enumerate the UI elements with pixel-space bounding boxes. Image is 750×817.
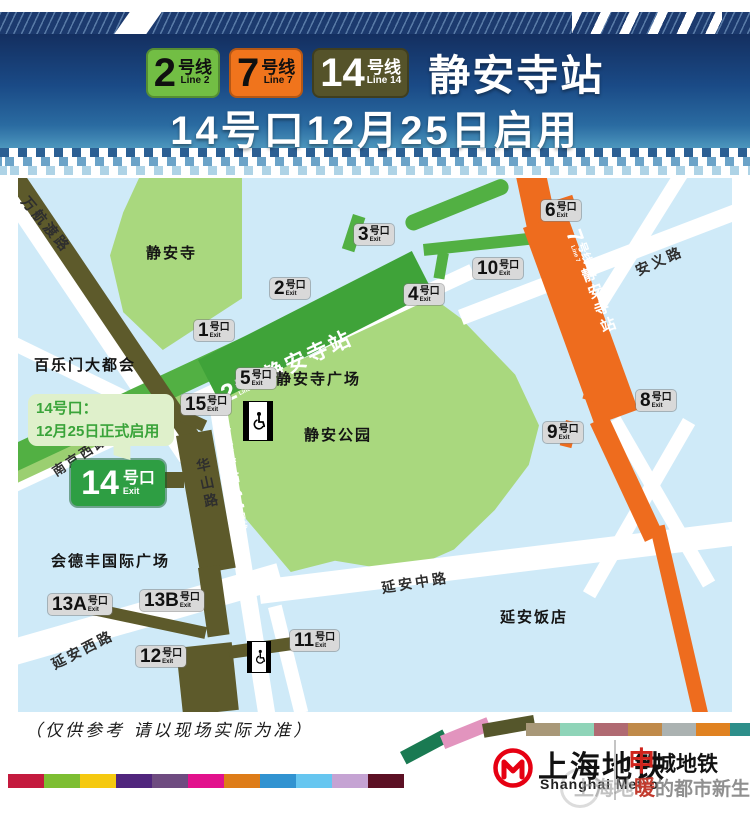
ribbon-segment: [560, 723, 594, 736]
callout-line2: 12月25日正式启用: [36, 421, 166, 444]
wheelchair-glyph: [252, 642, 266, 672]
area-label-gongyuan: 静安公园: [304, 424, 372, 445]
exit-en: Exit: [652, 403, 663, 409]
line-14-badge: 14 号线 Line 14: [312, 48, 409, 98]
exit-en: Exit: [252, 381, 263, 387]
exit-number: 3: [358, 225, 369, 244]
exit-badge-10: 10 号口Exit: [473, 258, 523, 279]
line-14-number: 14: [320, 53, 365, 93]
exit-en: Exit: [180, 603, 191, 609]
exit-word: 号口: [559, 425, 579, 435]
exit-word: 号口: [315, 633, 335, 643]
exit14-opening-callout: 14号口： 12月25日正式启用: [28, 394, 174, 446]
ribbon-segment: [224, 774, 260, 788]
exit-en: Exit: [370, 237, 381, 243]
exit-number: 13B: [144, 591, 179, 610]
exit-en: Exit: [207, 407, 218, 413]
exit-number: 10: [477, 259, 498, 278]
header-title-row: 2 号线 Line 2 7 号线 Line 7 14 号线 Line 14 静安…: [0, 42, 750, 103]
exit-number: 13A: [52, 595, 87, 614]
exit-number: 5: [240, 369, 251, 388]
exit-badge-13a: 13A 号口Exit: [48, 594, 112, 615]
decorative-metro-ribbon-bottom: [8, 774, 405, 788]
exit-word: 号口: [420, 287, 440, 297]
exit-word: 号口: [557, 203, 577, 213]
area-label-bailemen: 百乐门大都会: [34, 354, 136, 375]
exit-en: Exit: [559, 435, 570, 441]
slogan-gray-text: 上海地: [574, 778, 634, 800]
page-title-station: 静安寺站: [428, 42, 604, 103]
header-white-slashes: [572, 12, 722, 34]
page-subtitle: 14号口12月25日启用: [0, 98, 750, 156]
ribbon-segment: [80, 774, 116, 788]
ribbon-segment: [662, 723, 696, 736]
line-14-band-number: 14: [225, 488, 247, 512]
exit-badge-12: 12 号口Exit: [136, 646, 186, 667]
exit-word: 号口: [210, 323, 230, 333]
callout-line1: 14号口：: [36, 398, 166, 421]
ribbon-segment: [368, 774, 404, 788]
exit-en: Exit: [557, 213, 568, 219]
brand-slogan-watermark: 上海地暖的都市新生活: [574, 772, 750, 802]
exit-en: Exit: [499, 271, 510, 277]
line-7-number: 7: [237, 53, 259, 93]
area-label-huidefeng: 会德丰国际广场: [51, 550, 170, 571]
exit-word: 号口: [88, 597, 108, 607]
exit-number: 15: [185, 395, 206, 414]
line-7-band-station: 静安寺站: [576, 264, 620, 339]
decorative-metro-ribbon-top: [526, 723, 750, 736]
ribbon-segment: [44, 774, 80, 788]
exit-number: 2: [274, 279, 285, 298]
exit-badge-15: 15 号口Exit: [181, 394, 231, 415]
header-checker-row: [0, 166, 750, 175]
exit-badge-3: 3 号口Exit: [354, 224, 394, 245]
exit-word: 号口: [252, 371, 272, 381]
exit-badge-2: 2 号口Exit: [270, 278, 310, 299]
shanghai-metro-logo-icon: [492, 747, 534, 794]
header-banner: 2 号线 Line 2 7 号线 Line 7 14 号线 Line 14 静安…: [0, 0, 750, 176]
line-2-suffix: 号线: [178, 59, 212, 76]
exit-en: Exit: [210, 333, 221, 339]
station-map: 2 号线 Line 2 静安寺站 7 号线 Line 7 静安寺站 静安寺站 1…: [18, 178, 732, 712]
exit-number: 11: [294, 631, 314, 650]
exit-badge-13b: 13B 号口Exit: [140, 590, 204, 611]
exit-en: Exit: [420, 297, 431, 303]
wheelchair-access-icon: [244, 402, 272, 440]
exit-badge-14-highlight: 14 号口 Exit: [71, 460, 165, 506]
ribbon-segment: [260, 774, 296, 788]
ribbon-segment: [188, 774, 224, 788]
line-2-badge: 2 号线 Line 2: [146, 48, 220, 98]
road-cross-south: [268, 605, 308, 712]
exit-word: 号口: [499, 261, 519, 271]
area-label-jingansi: 静安寺: [146, 242, 197, 263]
area-label-guangchang: 静安寺广场: [276, 368, 361, 389]
exit-number: 9: [547, 423, 558, 442]
ribbon-segment: [594, 723, 628, 736]
exit-number: 8: [640, 391, 651, 410]
line-7-badge: 7 号线 Line 7: [229, 48, 303, 98]
line-2-north-continuation: [403, 178, 511, 233]
slogan-rest-text: 的都市新生活: [655, 779, 750, 800]
exit-number: 12: [140, 647, 161, 666]
line-14-band-station: 静安寺站: [213, 422, 243, 488]
slogan-red-char: 暖: [634, 777, 655, 800]
exit-en: Exit: [286, 291, 297, 297]
line-7-band-south: [650, 525, 710, 712]
exit-badge-4: 4 号口Exit: [404, 284, 444, 305]
header-checker-row: [0, 157, 750, 166]
icon-bar: [266, 642, 270, 672]
ribbon-segment: [152, 774, 188, 788]
exit-badge-8: 8 号口Exit: [636, 390, 676, 411]
ribbon-segment: [332, 774, 368, 788]
exit-word: 号口: [123, 471, 155, 487]
exit-badge-1: 1 号口Exit: [194, 320, 234, 341]
disclaimer-note: （仅供参考 请以现场实际为准）: [25, 716, 313, 741]
exit-number: 4: [408, 285, 419, 304]
ribbon-segment: [116, 774, 152, 788]
line-2-latin: Line 2: [181, 76, 210, 86]
exit-badge-9: 9 号口Exit: [543, 422, 583, 443]
ribbon-segment: [526, 723, 560, 736]
exit-number: 1: [198, 321, 209, 340]
exit-en: Exit: [123, 487, 140, 496]
exit-number: 14: [81, 466, 119, 500]
exit-word: 号口: [162, 649, 182, 659]
exit-en: Exit: [162, 659, 173, 665]
exit-en: Exit: [88, 607, 99, 613]
line-14-latin: Line 14: [367, 76, 401, 86]
exit-word: 号口: [286, 281, 306, 291]
line-7-suffix: 号线: [261, 59, 295, 76]
line-7-latin: Line 7: [264, 76, 293, 86]
exit-badge-5: 5 号口Exit: [236, 368, 276, 389]
wheelchair-glyph: [249, 402, 267, 440]
area-label-fandian: 延安饭店: [500, 606, 568, 627]
wheelchair-access-icon: [248, 642, 270, 672]
exit-badge-6: 6 号口Exit: [541, 200, 581, 221]
line-2-number: 2: [154, 53, 176, 93]
ribbon-segment: [696, 723, 730, 736]
exit-en: Exit: [315, 643, 326, 649]
exit-number: 6: [545, 201, 556, 220]
exit-badge-11: 11 号口Exit: [290, 630, 339, 651]
ribbon-segment: [628, 723, 662, 736]
exit-word: 号口: [207, 397, 227, 407]
ribbon-segment: [296, 774, 332, 788]
exit-word: 号口: [652, 393, 672, 403]
exit-word: 号口: [370, 227, 390, 237]
line-14-suffix: 号线: [367, 59, 401, 76]
ribbon-segment: [730, 723, 750, 736]
exit-word: 号口: [180, 593, 200, 603]
ribbon-segment: [8, 774, 44, 788]
icon-bar: [267, 402, 272, 440]
